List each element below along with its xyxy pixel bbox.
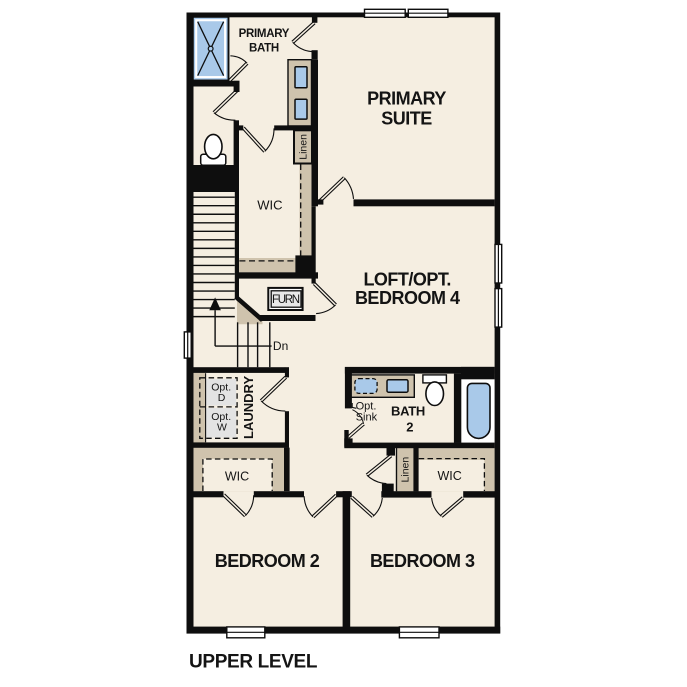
svg-text:LOFT/OPT.: LOFT/OPT. bbox=[363, 270, 451, 290]
svg-text:D: D bbox=[218, 392, 226, 404]
svg-text:Sink: Sink bbox=[356, 412, 378, 424]
svg-text:WIC: WIC bbox=[257, 198, 282, 213]
svg-text:UPPER LEVEL: UPPER LEVEL bbox=[189, 652, 318, 673]
svg-text:W: W bbox=[217, 421, 227, 433]
svg-text:PRIMARY: PRIMARY bbox=[367, 89, 446, 109]
svg-text:FURN: FURN bbox=[272, 294, 300, 306]
svg-text:Linen: Linen bbox=[400, 457, 412, 483]
svg-text:LAUNDRY: LAUNDRY bbox=[241, 376, 256, 439]
svg-text:SUITE: SUITE bbox=[381, 108, 432, 128]
svg-text:BATH: BATH bbox=[391, 404, 425, 419]
svg-text:Linen: Linen bbox=[298, 134, 310, 160]
svg-text:Dn: Dn bbox=[273, 339, 288, 353]
svg-text:2: 2 bbox=[406, 420, 413, 435]
svg-text:WIC: WIC bbox=[437, 469, 461, 483]
svg-text:BEDROOM 2: BEDROOM 2 bbox=[215, 551, 320, 571]
svg-text:WIC: WIC bbox=[225, 470, 249, 484]
svg-text:BATH: BATH bbox=[249, 42, 279, 54]
svg-text:PRIMARY: PRIMARY bbox=[239, 28, 290, 40]
svg-text:BEDROOM 4: BEDROOM 4 bbox=[355, 288, 460, 308]
svg-text:BEDROOM 3: BEDROOM 3 bbox=[370, 551, 475, 571]
